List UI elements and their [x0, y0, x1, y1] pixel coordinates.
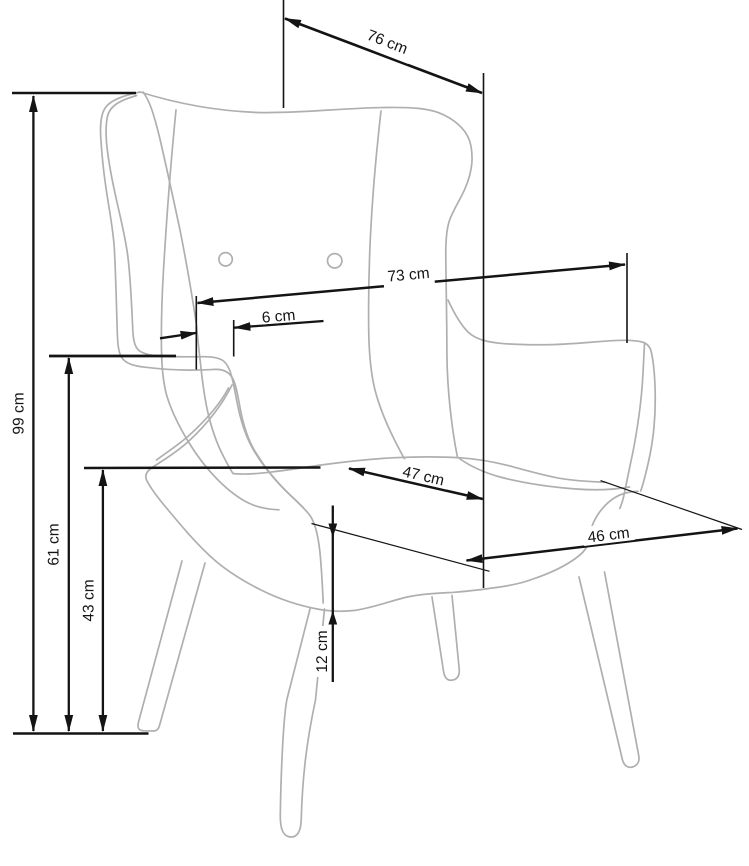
svg-text:61 cm: 61 cm [46, 523, 63, 565]
svg-text:43 cm: 43 cm [81, 579, 98, 621]
svg-text:99 cm: 99 cm [11, 392, 28, 434]
svg-text:12 cm: 12 cm [314, 630, 331, 672]
svg-text:6 cm: 6 cm [261, 307, 296, 327]
